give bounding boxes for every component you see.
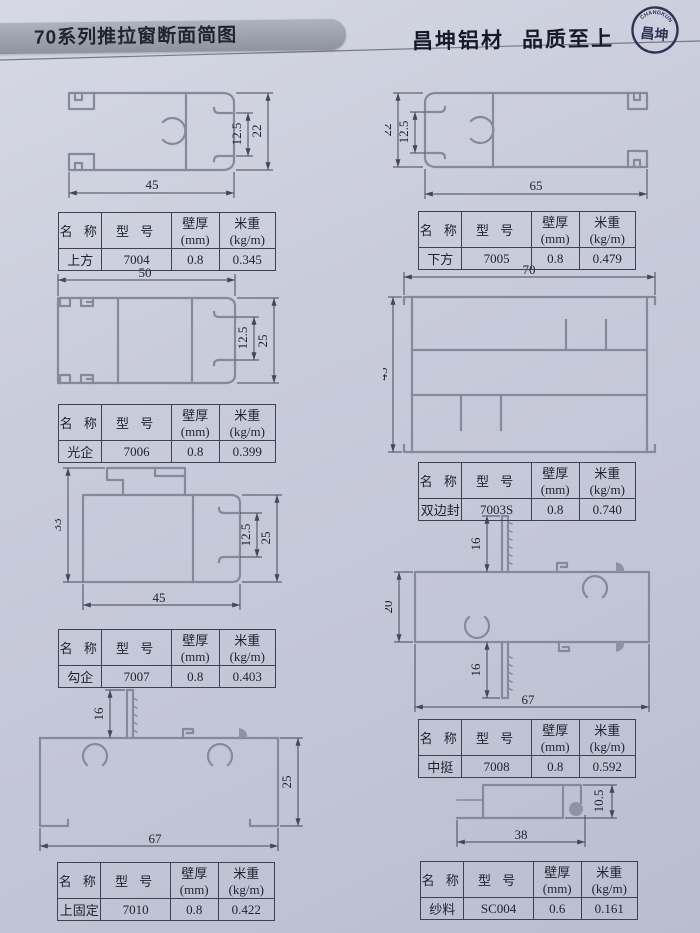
profile-model: 7008 (462, 756, 531, 778)
drawing-7006: 50 25 12.5 (45, 268, 290, 400)
dimensions-7007: 33 25 12.5 45 (55, 468, 282, 610)
col-name: 名 称 (59, 630, 102, 666)
dim-width: 45 (153, 590, 166, 605)
dim-height: 22 (385, 124, 394, 137)
spec-value-row: 上方 7004 0.8 0.345 (59, 249, 276, 271)
spec-header-row: 名 称 型 号 壁厚(mm) 米重(kg/m) (58, 863, 275, 899)
dim-height: 25 (255, 335, 270, 348)
spec-value-row: 上固定 7010 0.8 0.422 (58, 899, 275, 921)
spec-header-row: 名 称 型 号 壁厚(mm) 米重(kg/m) (59, 405, 276, 441)
col-model: 型 号 (101, 863, 170, 899)
spec-table-7005: 名 称 型 号 壁厚(mm) 米重(kg/m) 下方 7005 0.8 0.47… (418, 211, 636, 270)
col-name: 名 称 (421, 862, 464, 898)
profile-thickness: 0.8 (531, 756, 579, 778)
spec-value-row: 中挺 7008 0.8 0.592 (419, 756, 636, 778)
col-thickness: 壁厚(mm) (171, 630, 219, 666)
dim-inner: 12.5 (396, 121, 411, 144)
col-model: 型 号 (462, 720, 531, 756)
spec-header-row: 名 称 型 号 壁厚(mm) 米重(kg/m) (421, 862, 638, 898)
col-model: 型 号 (464, 862, 533, 898)
col-thickness: 壁厚(mm) (531, 463, 579, 499)
drawing-7005: 22 12.5 65 (385, 82, 655, 210)
dim-height-left: 33 (55, 519, 64, 532)
logo-text: 昌坤 (640, 25, 670, 44)
col-name: 名 称 (419, 463, 462, 499)
dimensions-7004: 45 22 12.5 (69, 93, 273, 198)
dim-height: 20 (385, 601, 395, 614)
col-weight: 米重(kg/m) (219, 213, 275, 249)
profile-name: 上固定 (58, 899, 101, 921)
col-model: 型 号 (462, 212, 531, 248)
profile-weight: 0.592 (579, 756, 635, 778)
col-name: 名 称 (419, 720, 462, 756)
spec-value-row: 光企 7006 0.8 0.399 (59, 441, 276, 463)
profile-model: SC004 (464, 898, 533, 920)
profile-thickness: 0.8 (171, 441, 219, 463)
profile-thickness: 0.8 (171, 666, 219, 688)
catalog-page: 70系列推拉窗断面简图 昌坤铝材品质至上 CHANGKUN 昌坤 45 22 (0, 0, 700, 933)
col-thickness: 壁厚(mm) (171, 405, 219, 441)
spec-table-7003S: 名 称 型 号 壁厚(mm) 米重(kg/m) 双边封 7003S 0.8 0.… (418, 462, 636, 521)
profile-name: 上方 (59, 249, 102, 271)
slogan-text: 品质至上 (522, 28, 614, 52)
dim-fin: 16 (91, 707, 106, 721)
profile-name: 勾企 (59, 666, 102, 688)
profile-name: 双边封 (419, 499, 462, 521)
profile-thickness: 0.6 (533, 898, 581, 920)
col-weight: 米重(kg/m) (219, 405, 275, 441)
dim-inner: 12.5 (235, 327, 250, 350)
dim-height: 25 (279, 776, 294, 789)
spec-header-row: 名 称 型 号 壁厚(mm) 米重(kg/m) (59, 213, 276, 249)
profile-name: 下方 (419, 248, 462, 270)
spec-table-SC004: 名 称 型 号 壁厚(mm) 米重(kg/m) 纱料 SC004 0.6 0.1… (420, 861, 638, 920)
profile-model: 7005 (462, 248, 531, 270)
col-model: 型 号 (102, 405, 171, 441)
profile-thickness: 0.8 (171, 249, 219, 271)
spec-value-row: 双边封 7003S 0.8 0.740 (419, 499, 636, 521)
dim-inner: 12.5 (238, 524, 253, 547)
profile-outline-7005 (425, 93, 647, 167)
profile-model: 7006 (102, 441, 171, 463)
profile-weight: 0.740 (579, 499, 635, 521)
profile-model: 7003S (462, 499, 531, 521)
brand-name: 昌坤铝材 (412, 29, 504, 53)
col-thickness: 壁厚(mm) (170, 863, 218, 899)
col-name: 名 称 (419, 212, 462, 248)
profile-model: 7007 (102, 666, 171, 688)
spec-table-7007: 名 称 型 号 壁厚(mm) 米重(kg/m) 勾企 7007 0.8 0.40… (58, 629, 276, 688)
title-banner: 70系列推拉窗断面简图 (0, 19, 346, 54)
dim-fin-top: 16 (468, 537, 483, 551)
col-weight: 米重(kg/m) (581, 862, 637, 898)
dimensions-7006: 50 25 12.5 (58, 268, 279, 383)
profile-thickness: 0.8 (531, 248, 579, 270)
dim-height: 45 (383, 368, 390, 381)
dimensions-7008: 20 16 16 67 (385, 516, 649, 712)
dim-height: 22 (249, 125, 264, 138)
spec-table-7010: 名 称 型 号 壁厚(mm) 米重(kg/m) 上固定 7010 0.8 0.4… (57, 862, 275, 921)
profile-outline-7006 (58, 298, 235, 383)
col-weight: 米重(kg/m) (579, 212, 635, 248)
dim-inner: 12.5 (229, 123, 244, 146)
dim-width: 67 (522, 692, 536, 707)
profile-model: 7010 (101, 899, 170, 921)
profile-outline-7003S (404, 297, 655, 452)
dim-width: 65 (530, 178, 543, 193)
spec-header-row: 名 称 型 号 壁厚(mm) 米重(kg/m) (419, 720, 636, 756)
col-weight: 米重(kg/m) (219, 630, 275, 666)
profile-name: 纱料 (421, 898, 464, 920)
col-thickness: 壁厚(mm) (531, 720, 579, 756)
profile-outline-SC004 (457, 785, 583, 818)
profile-model: 7004 (102, 249, 171, 271)
profile-weight: 0.422 (218, 899, 274, 921)
profile-outline-7008 (415, 516, 649, 698)
col-weight: 米重(kg/m) (579, 720, 635, 756)
company-logo: CHANGKUN 昌坤 (628, 3, 683, 58)
col-model: 型 号 (102, 630, 171, 666)
drawing-7004: 45 22 12.5 (58, 82, 288, 210)
dim-width: 45 (146, 177, 159, 192)
profile-outline-7007 (83, 468, 240, 582)
profile-weight: 0.479 (579, 248, 635, 270)
col-thickness: 壁厚(mm) (531, 212, 579, 248)
spec-header-row: 名 称 型 号 壁厚(mm) 米重(kg/m) (419, 463, 636, 499)
col-name: 名 称 (59, 213, 102, 249)
col-thickness: 壁厚(mm) (533, 862, 581, 898)
spec-table-7006: 名 称 型 号 壁厚(mm) 米重(kg/m) 光企 7006 0.8 0.39… (58, 404, 276, 463)
col-weight: 米重(kg/m) (218, 863, 274, 899)
profile-outline-7010 (40, 690, 278, 826)
dimensions-7003S: 70 45 (383, 262, 655, 452)
drawing-7003S: 70 45 (383, 262, 675, 460)
page-title: 70系列推拉窗断面简图 (0, 19, 346, 54)
dim-width: 67 (149, 831, 163, 846)
drawing-7007: 33 25 12.5 45 (55, 458, 297, 626)
dimensions-SC004: 10.5 38 (457, 785, 617, 847)
drawing-SC004: 10.5 38 (395, 775, 645, 860)
spec-value-row: 下方 7005 0.8 0.479 (419, 248, 636, 270)
spec-header-row: 名 称 型 号 壁厚(mm) 米重(kg/m) (419, 212, 636, 248)
col-model: 型 号 (462, 463, 531, 499)
dim-width: 38 (515, 827, 528, 842)
profile-weight: 0.399 (219, 441, 275, 463)
profile-thickness: 0.8 (531, 499, 579, 521)
profile-weight: 0.161 (581, 898, 637, 920)
profile-name: 光企 (59, 441, 102, 463)
profile-outline-7004 (69, 93, 234, 170)
col-model: 型 号 (102, 213, 171, 249)
profile-name: 中挺 (419, 756, 462, 778)
dim-height: 10.5 (591, 790, 606, 813)
drawing-7008: 20 16 16 67 (385, 508, 677, 716)
profile-weight: 0.345 (219, 249, 275, 271)
col-weight: 米重(kg/m) (579, 463, 635, 499)
col-name: 名 称 (59, 405, 102, 441)
spec-table-7008: 名 称 型 号 壁厚(mm) 米重(kg/m) 中挺 7008 0.8 0.59… (418, 719, 636, 778)
profile-weight: 0.403 (219, 666, 275, 688)
drawing-7010: 16 25 67 (30, 680, 330, 858)
spec-table-7004: 名 称 型 号 壁厚(mm) 米重(kg/m) 上方 7004 0.8 0.34… (58, 212, 276, 271)
dim-fin-bottom: 16 (468, 663, 483, 677)
profile-thickness: 0.8 (170, 899, 218, 921)
spec-value-row: 纱料 SC004 0.6 0.161 (421, 898, 638, 920)
spec-value-row: 勾企 7007 0.8 0.403 (59, 666, 276, 688)
brand-slogan: 昌坤铝材品质至上 (412, 23, 614, 56)
spec-header-row: 名 称 型 号 壁厚(mm) 米重(kg/m) (59, 630, 276, 666)
dim-height-right: 25 (258, 532, 273, 545)
col-thickness: 壁厚(mm) (171, 213, 219, 249)
col-name: 名 称 (58, 863, 101, 899)
